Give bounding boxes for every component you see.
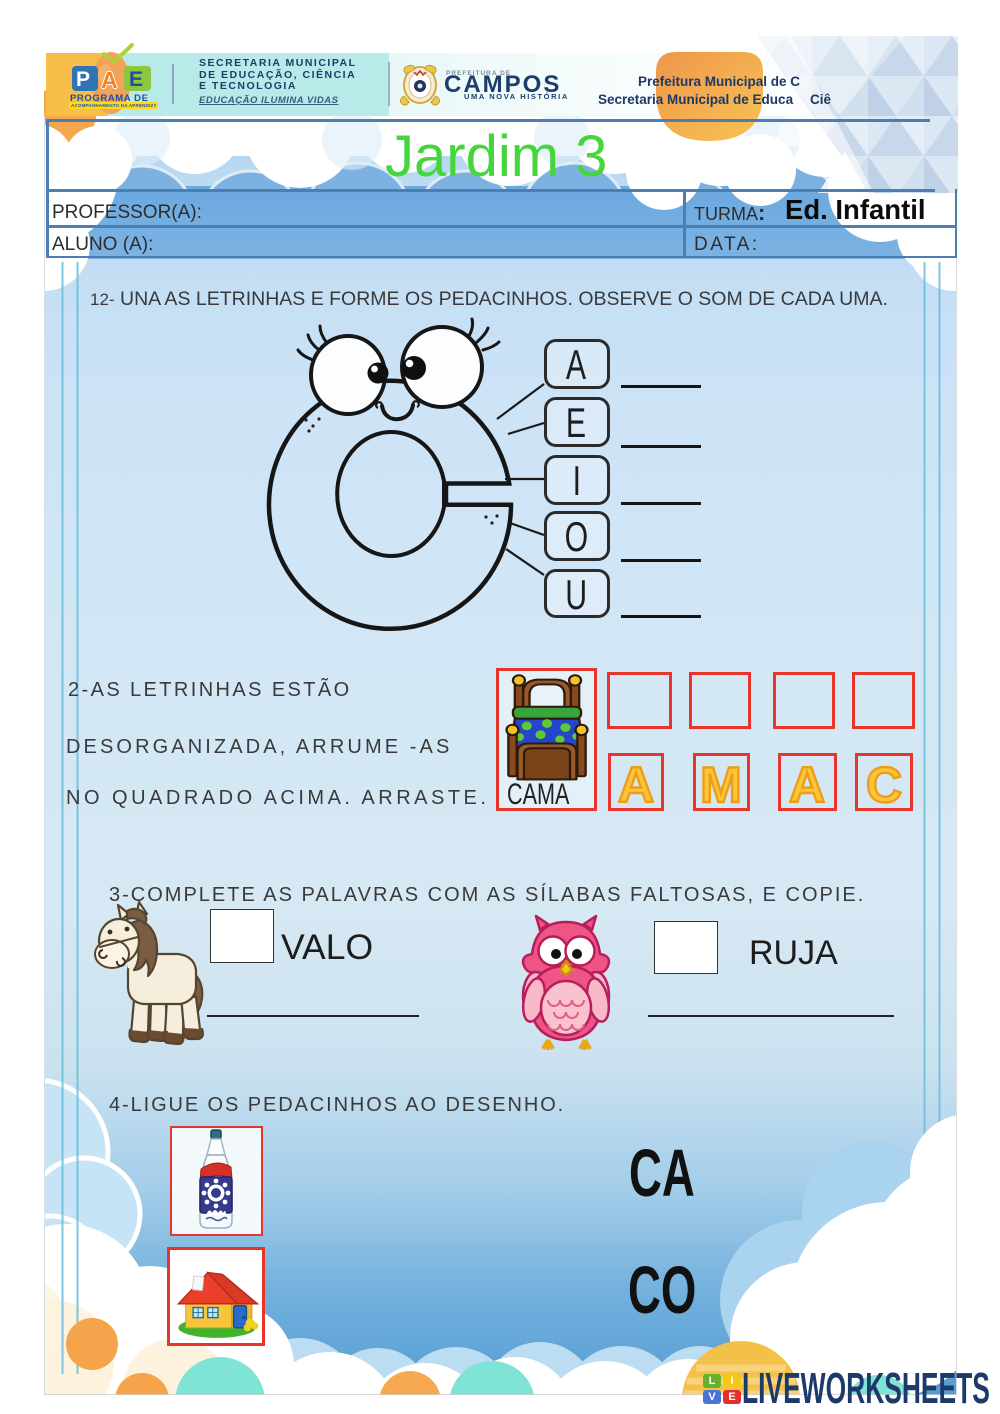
svg-text:A: A [788,757,824,808]
svg-text:A: A [618,757,654,808]
svg-text:M: M [700,757,742,808]
svg-text:C: C [865,757,901,808]
